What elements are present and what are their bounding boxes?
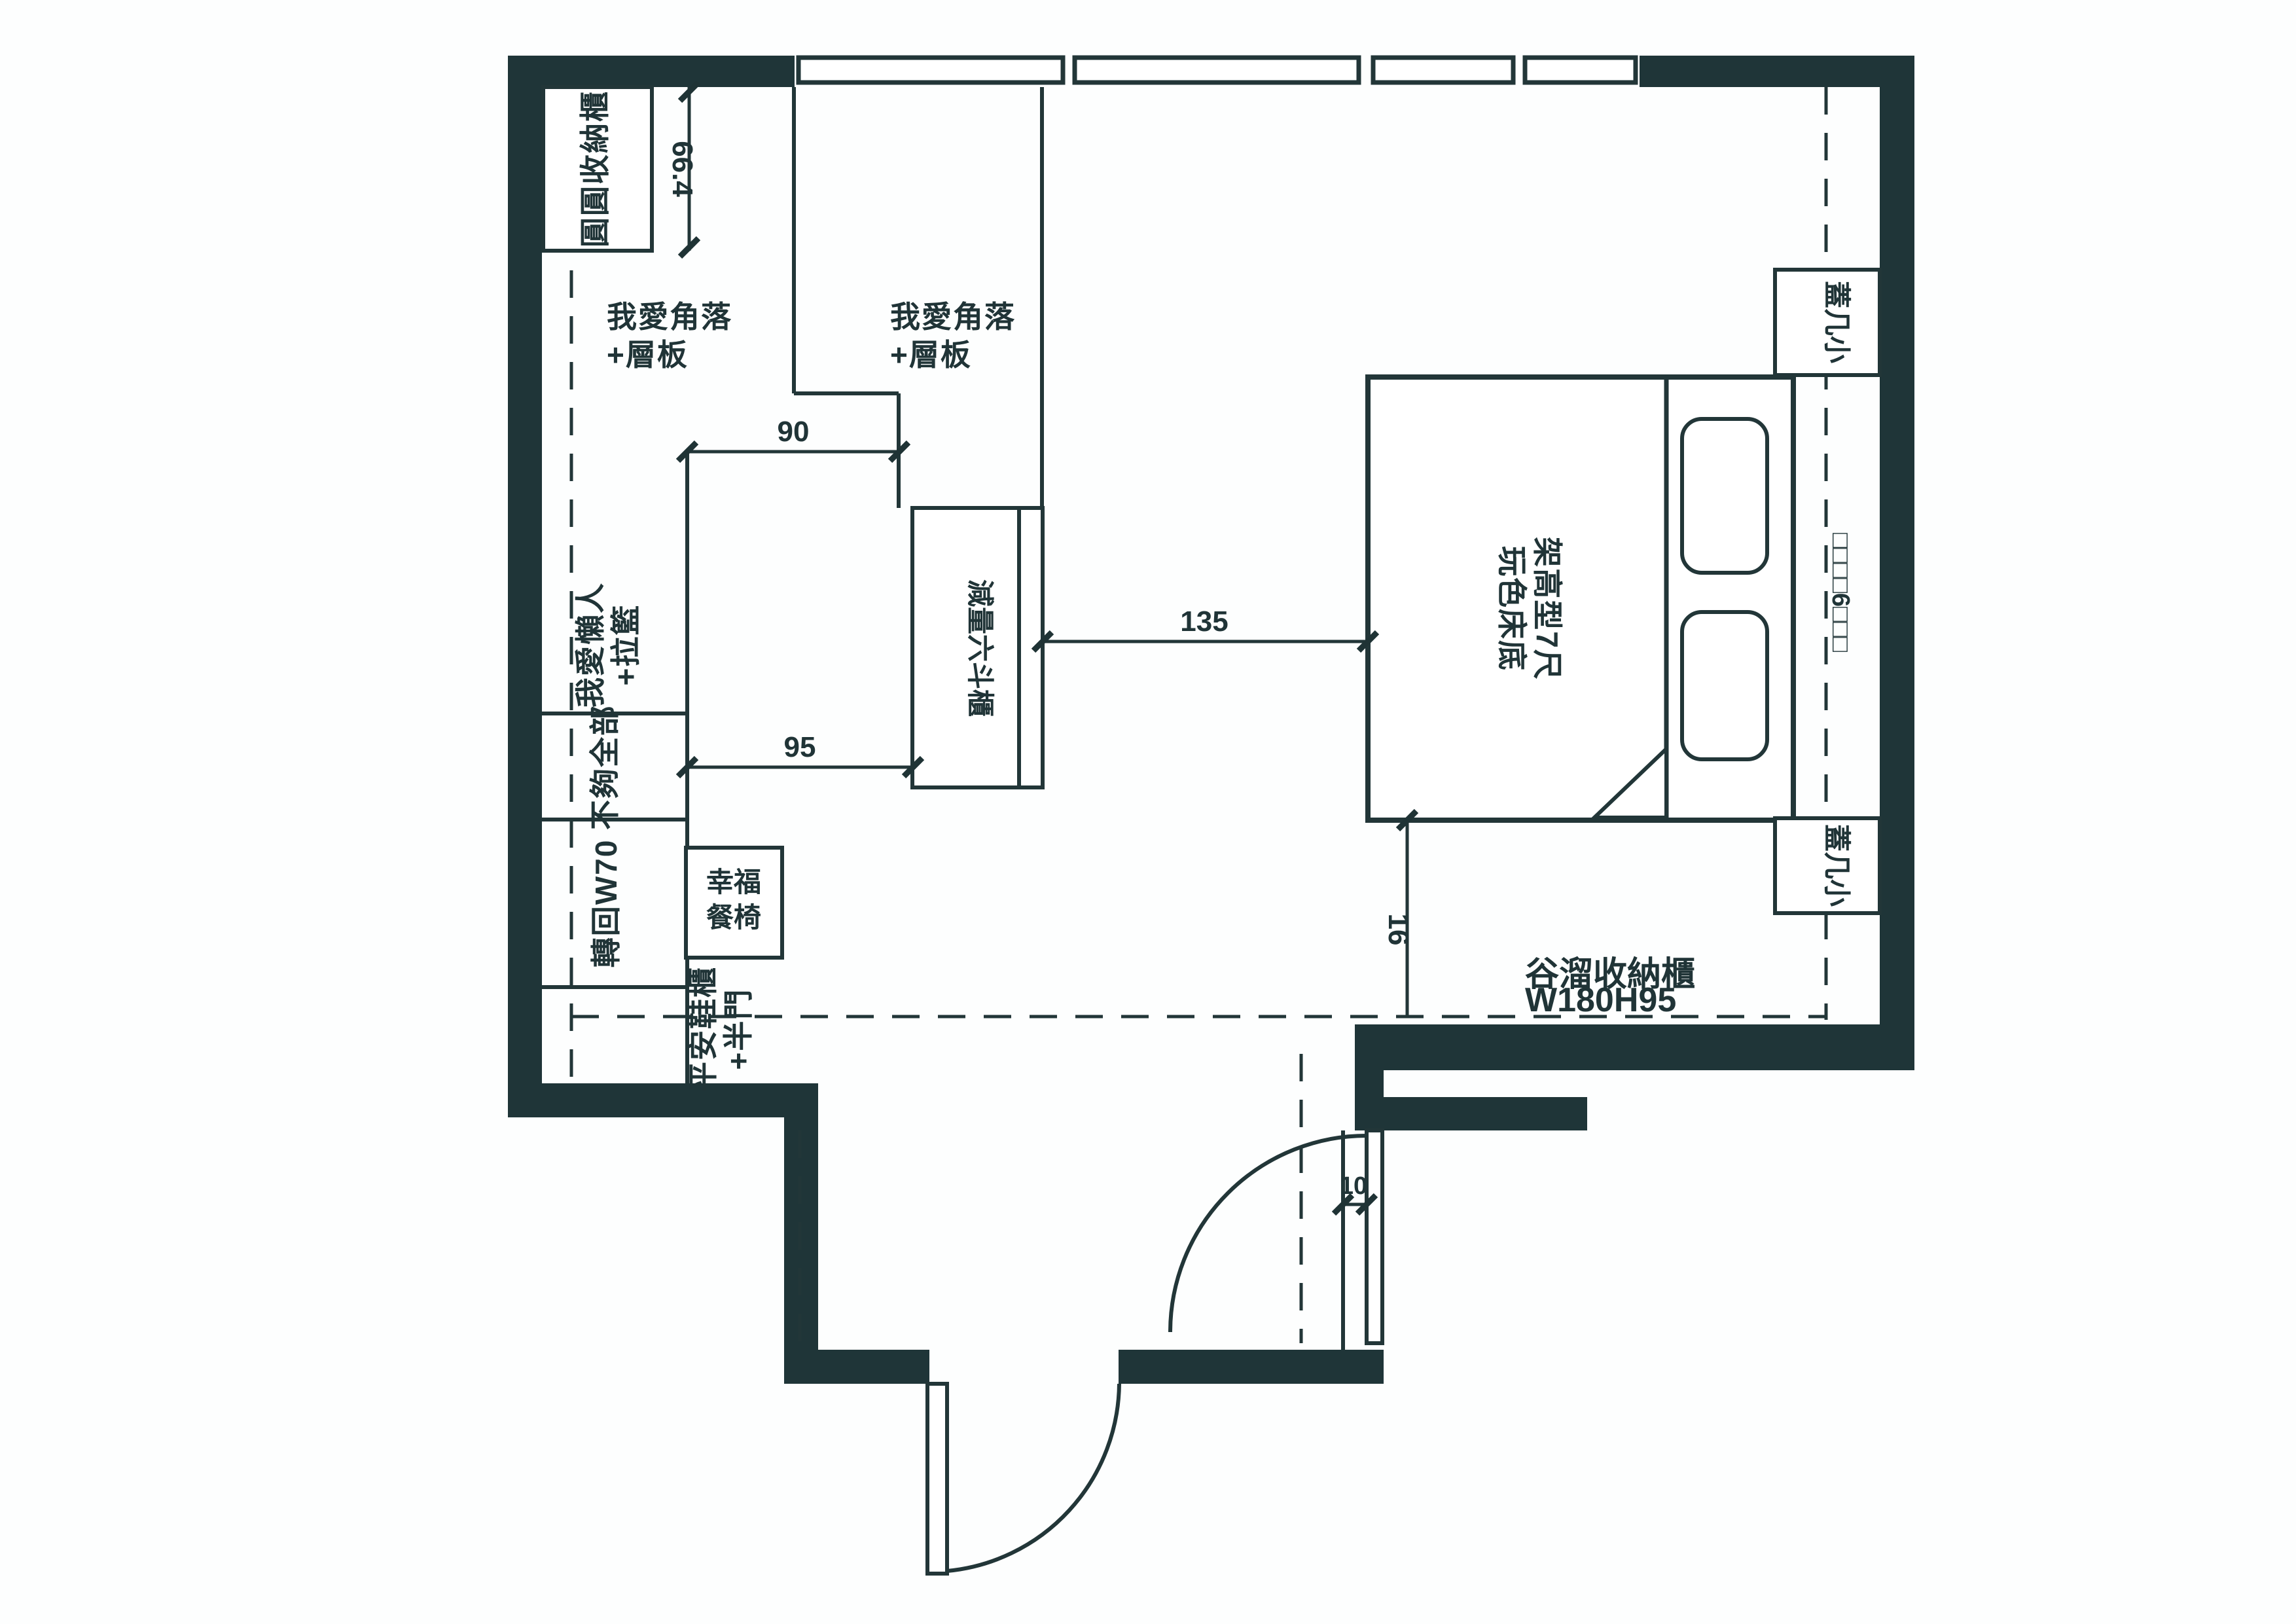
dimension-lines [678, 82, 1416, 1214]
main-door-leaf [927, 1384, 947, 1574]
pillow-bottom [1682, 612, 1767, 759]
dim-text-16: 16 [1382, 914, 1414, 946]
label-corner-shelf-1-line2: +層板 [607, 338, 689, 372]
window-band [798, 58, 1636, 82]
label-lazy-line1: 我愛懶人 [573, 582, 607, 708]
label-bed-line1: 架高型7尺 [1530, 537, 1564, 681]
wall-bottom-left [508, 1083, 818, 1117]
label-dresser: 減量六斗櫃 [965, 579, 996, 717]
floor-plan-svg: 圓圓收納櫃 我愛懶人 +拉籃 不夠全部 轉回W70 平安鞋櫃 +半門 我愛角落 … [0, 0, 2296, 1624]
label-w70-unit: 轉回W70 [589, 839, 623, 968]
entry-door-swing-arc [1170, 1136, 1367, 1332]
window-panel-3 [1373, 58, 1513, 82]
wall-vestibule-bottom-right [1119, 1350, 1384, 1384]
label-barn-line2: W180H95 [1525, 981, 1676, 1019]
main-door-swing-arc [947, 1384, 1119, 1571]
label-chair-line2: 餐椅 [706, 902, 761, 933]
wall-top-right [1640, 56, 1914, 87]
label-side-table-bottom: 蓋几小 [1821, 824, 1852, 907]
label-corner-shelf-2-line2: +層板 [890, 338, 972, 372]
bed [1368, 377, 1793, 820]
label-chair-line1: 幸福 [706, 867, 761, 897]
dim-text-66: 66.4 [666, 141, 698, 197]
wall-top-left [508, 56, 795, 87]
label-round-cabinet: 圓圓收納櫃 [578, 90, 612, 247]
dim-text-135: 135 [1180, 605, 1228, 638]
label-hang-all: 不夠全部 [588, 704, 622, 830]
window-panel-4 [1525, 58, 1636, 82]
label-corner-shelf-2-line1: 我愛角落 [890, 300, 1016, 334]
wall-bottom-right [1355, 1024, 1914, 1070]
floor-plan-page: 圓圓收納櫃 我愛懶人 +拉籃 不夠全部 轉回W70 平安鞋櫃 +半門 我愛角落 … [0, 0, 2296, 1624]
window-panel-2 [1075, 58, 1359, 82]
entry-door-leaf [1367, 1130, 1382, 1343]
label-bed-line2: 玩色床底 [1495, 546, 1529, 672]
label-side-table-top: 蓋几小 [1821, 281, 1852, 363]
window-marks-icon: □□□□6□□□ [1827, 533, 1854, 652]
label-shoe-line2: +半門 [721, 988, 755, 1070]
wall-vestibule-bottom-left [784, 1350, 929, 1384]
wall-vestibule-right-post [1355, 1024, 1384, 1130]
wall-right [1880, 56, 1914, 1070]
wall-stub [1384, 1097, 1587, 1130]
dim-text-95: 95 [784, 731, 816, 763]
label-lazy-line2: +拉籃 [609, 604, 643, 686]
label-corner-shelf-1-line1: 我愛角落 [607, 300, 732, 334]
pillow-top [1682, 419, 1767, 573]
label-shoe-line1: 平安鞋櫃 [686, 966, 720, 1092]
dim-text-90: 90 [778, 416, 810, 448]
dim-text-10: 10 [1340, 1172, 1367, 1200]
window-panel-1 [798, 58, 1063, 82]
wall-left [508, 56, 542, 1117]
